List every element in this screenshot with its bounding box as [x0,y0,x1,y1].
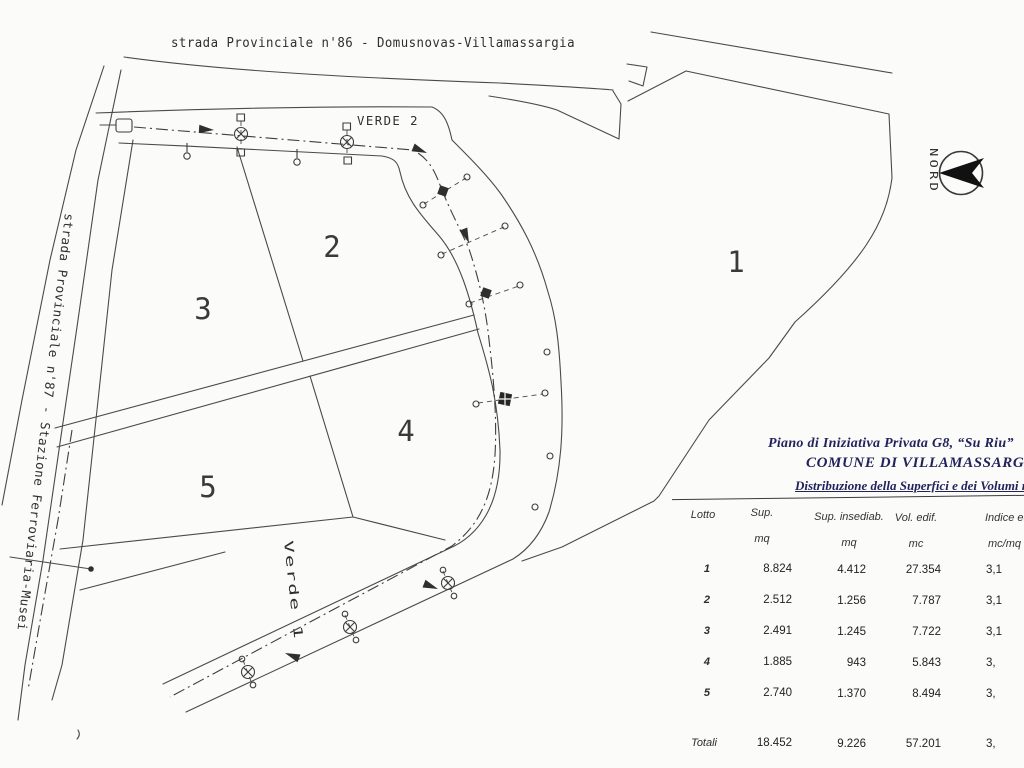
cell-insediab: 1.256 [796,595,866,607]
cell-indice: 3, [986,657,996,669]
col-header-sup: Sup. [739,507,785,519]
cell-insediab: 4.412 [796,564,866,576]
north-label: NORD [927,148,940,194]
col-header-sup-unit: mq [739,533,785,545]
cell-indice: 3,1 [986,564,1002,576]
flow-arrow [283,649,300,662]
lot-number-1: 1 [727,245,744,279]
cell-indice: 3,1 [986,626,1002,638]
main-chamber-symbol [473,390,548,407]
col-header-vol-unit: mc [886,538,946,550]
site-plan-drawing: strada Provinciale n'86 - Domusnovas-Vil… [0,0,1024,768]
col-header-vol: Vol. edif. [886,512,946,524]
cell-sup: 1.885 [722,656,792,668]
lot-number-5: 5 [199,470,216,504]
lot-number-2: 2 [323,230,340,264]
cell-sup: 8.824 [722,563,792,575]
manhole-symbol [235,114,248,156]
verde1-label: Verde 1 [281,540,306,641]
panel-title-line2: COMUNE DI VILLAMASSARGIA [806,455,1024,472]
cell-insediab: 1.370 [796,688,866,700]
cell-vol: 8.494 [871,688,941,700]
cell-indice: 3, [986,688,996,700]
path-strip-lower [57,329,479,447]
cell-total-sup: 18.452 [722,737,792,749]
left-road: strada Provinciale n'87 - Stazione Ferro… [2,66,225,739]
cell-total-vol: 57.201 [871,738,941,750]
cell-vol: 7.722 [871,626,941,638]
cell-insediab: 943 [796,657,866,669]
north-arrow: NORD [927,148,984,195]
lot2-lot3-boundary [237,147,303,361]
col-header-indice-unit: mc/mq [988,538,1021,550]
flow-arrow [459,228,472,245]
scanned-site-plan-page: strada Provinciale n'86 - Domusnovas-Vil… [0,0,1024,768]
cell-indice: 3,1 [986,595,1002,607]
cell-vol: 7.787 [871,595,941,607]
top-road: strada Provinciale n'86 - Domusnovas-Vil… [124,32,892,139]
lots-south-edge [60,517,445,549]
cell-lotto: 1 [670,563,710,575]
cell-vol: 5.843 [871,657,941,669]
lot-number-3: 3 [194,292,211,326]
flow-arrow [422,580,439,593]
cell-lotto: 2 [670,594,710,606]
cell-sup: 2.512 [722,594,792,606]
valve-symbol [466,282,523,307]
cell-lotto: 5 [670,687,710,699]
small-hook-mark [627,64,647,86]
manhole-symbol [341,123,354,164]
col-header-insediab-unit: mq [806,537,892,549]
cell-totali-label: Totali [657,737,717,749]
top-road-label: strada Provinciale n'86 - Domusnovas-Vil… [171,36,575,51]
manhole-symbol [440,567,457,599]
cell-sup: 2.740 [722,687,792,699]
utility-symbols [100,114,553,697]
tick-symbol [438,223,508,258]
cell-total-indice: 3, [986,738,996,750]
post-marker [547,453,553,459]
col-header-insediab: Sup. insediab. [806,511,892,523]
post-marker [532,504,538,510]
cell-sup: 2.491 [722,625,792,637]
valve-symbol [420,174,470,208]
loop-road: VERDE 2 Verde 1 [96,107,562,712]
verde2-label: VERDE 2 [357,113,419,128]
cell-insediab: 1.245 [796,626,866,638]
cell-lotto: 3 [670,625,710,637]
path-strip-upper [55,315,474,428]
col-header-lotto: Lotto [680,509,726,521]
pipeline-start-box [116,119,132,132]
post-marker [544,349,550,355]
lot-numbers: 1 2 3 4 5 [194,230,744,504]
north-arrow-icon [939,158,984,188]
lot4-lot5-boundary [310,376,353,517]
panel-subtitle: Distribuzione della Superfici e dei Volu… [795,478,1024,494]
lot-number-4: 4 [397,414,414,448]
col-header-indice: Indice ed [985,512,1024,524]
left-road-label: strada Provinciale n'87 - Stazione Ferro… [14,213,76,632]
cell-vol: 27.354 [871,564,941,576]
scan-speck [77,730,79,739]
cell-total-insediab: 9.226 [796,738,866,750]
cell-lotto: 4 [670,656,710,668]
panel-title-line1: Piano di Iniziativa Privata G8, “Su Riu” [768,436,1014,452]
lamp-post-symbol [184,143,190,159]
